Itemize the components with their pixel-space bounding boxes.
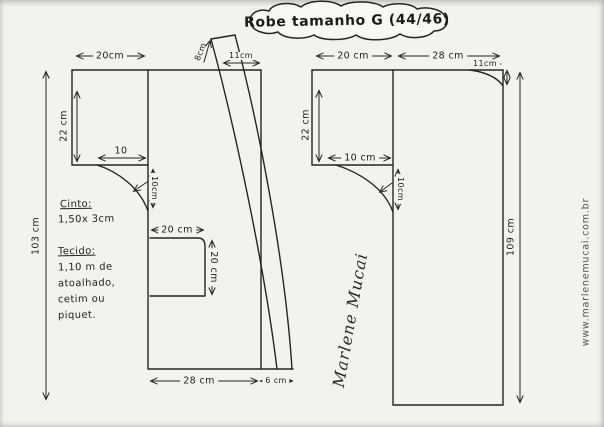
left-pocket-height-label: 20 cm <box>208 248 218 286</box>
belt-note-heading: Cinto: <box>60 200 92 211</box>
left-band-top-edge <box>211 35 235 39</box>
left-armhole-pointer-arrow <box>134 182 147 191</box>
left-pocket-width-label: 20 cm <box>158 225 196 235</box>
left-pattern-piece <box>72 35 293 369</box>
left-band-bottom-label: 6 cm <box>262 377 289 385</box>
fabric-note-line4: piquet. <box>58 311 96 322</box>
left-shoulder-width-label: 11cm <box>226 52 256 60</box>
left-chest-inset-label: 10 <box>112 146 131 156</box>
right-armhole-depth-label: 10cm <box>396 174 404 204</box>
right-upper-height-label: 22 cm <box>301 109 311 141</box>
left-bottom-width-label: 28 cm <box>180 376 218 386</box>
page-title: Robe tamanho G (44/46) <box>244 12 450 30</box>
belt-note-value: 1,50x 3cm <box>58 215 115 226</box>
left-pocket <box>150 238 205 296</box>
right-neck-width-label: 11cm <box>470 60 500 68</box>
left-top-width-label: 20cm <box>93 51 127 61</box>
right-neckline-curve <box>470 70 503 86</box>
right-armhole-pointer-arrow <box>380 183 392 192</box>
left-band-outer-curve <box>211 39 277 369</box>
left-upper-height-label: 22 cm <box>59 110 69 142</box>
left-armhole-depth-label: 10cm <box>150 173 158 203</box>
right-top-left-width-label: 20 cm <box>334 51 372 61</box>
fabric-note-line3: cetim ou <box>58 295 105 306</box>
right-chest-inset-label: 10 cm <box>341 153 379 163</box>
pattern-sheet: Robe tamanho G (44/46) 20cm 103 cm 22 cm… <box>0 0 604 427</box>
fabric-note-line2: atoalhado, <box>58 279 115 290</box>
right-top-right-width-label: 28 cm <box>429 51 467 61</box>
left-armhole-curve <box>97 165 148 211</box>
left-total-height-label: 103 cm <box>31 214 41 258</box>
website-watermark: www.marlenemucai.com.br <box>581 198 592 346</box>
left-band-inner-curve <box>235 35 292 369</box>
fabric-note-line1: 1,10 m de <box>58 263 113 274</box>
right-total-height-label: 109 cm <box>506 215 516 259</box>
fabric-note-heading: Tecido: <box>58 247 96 258</box>
